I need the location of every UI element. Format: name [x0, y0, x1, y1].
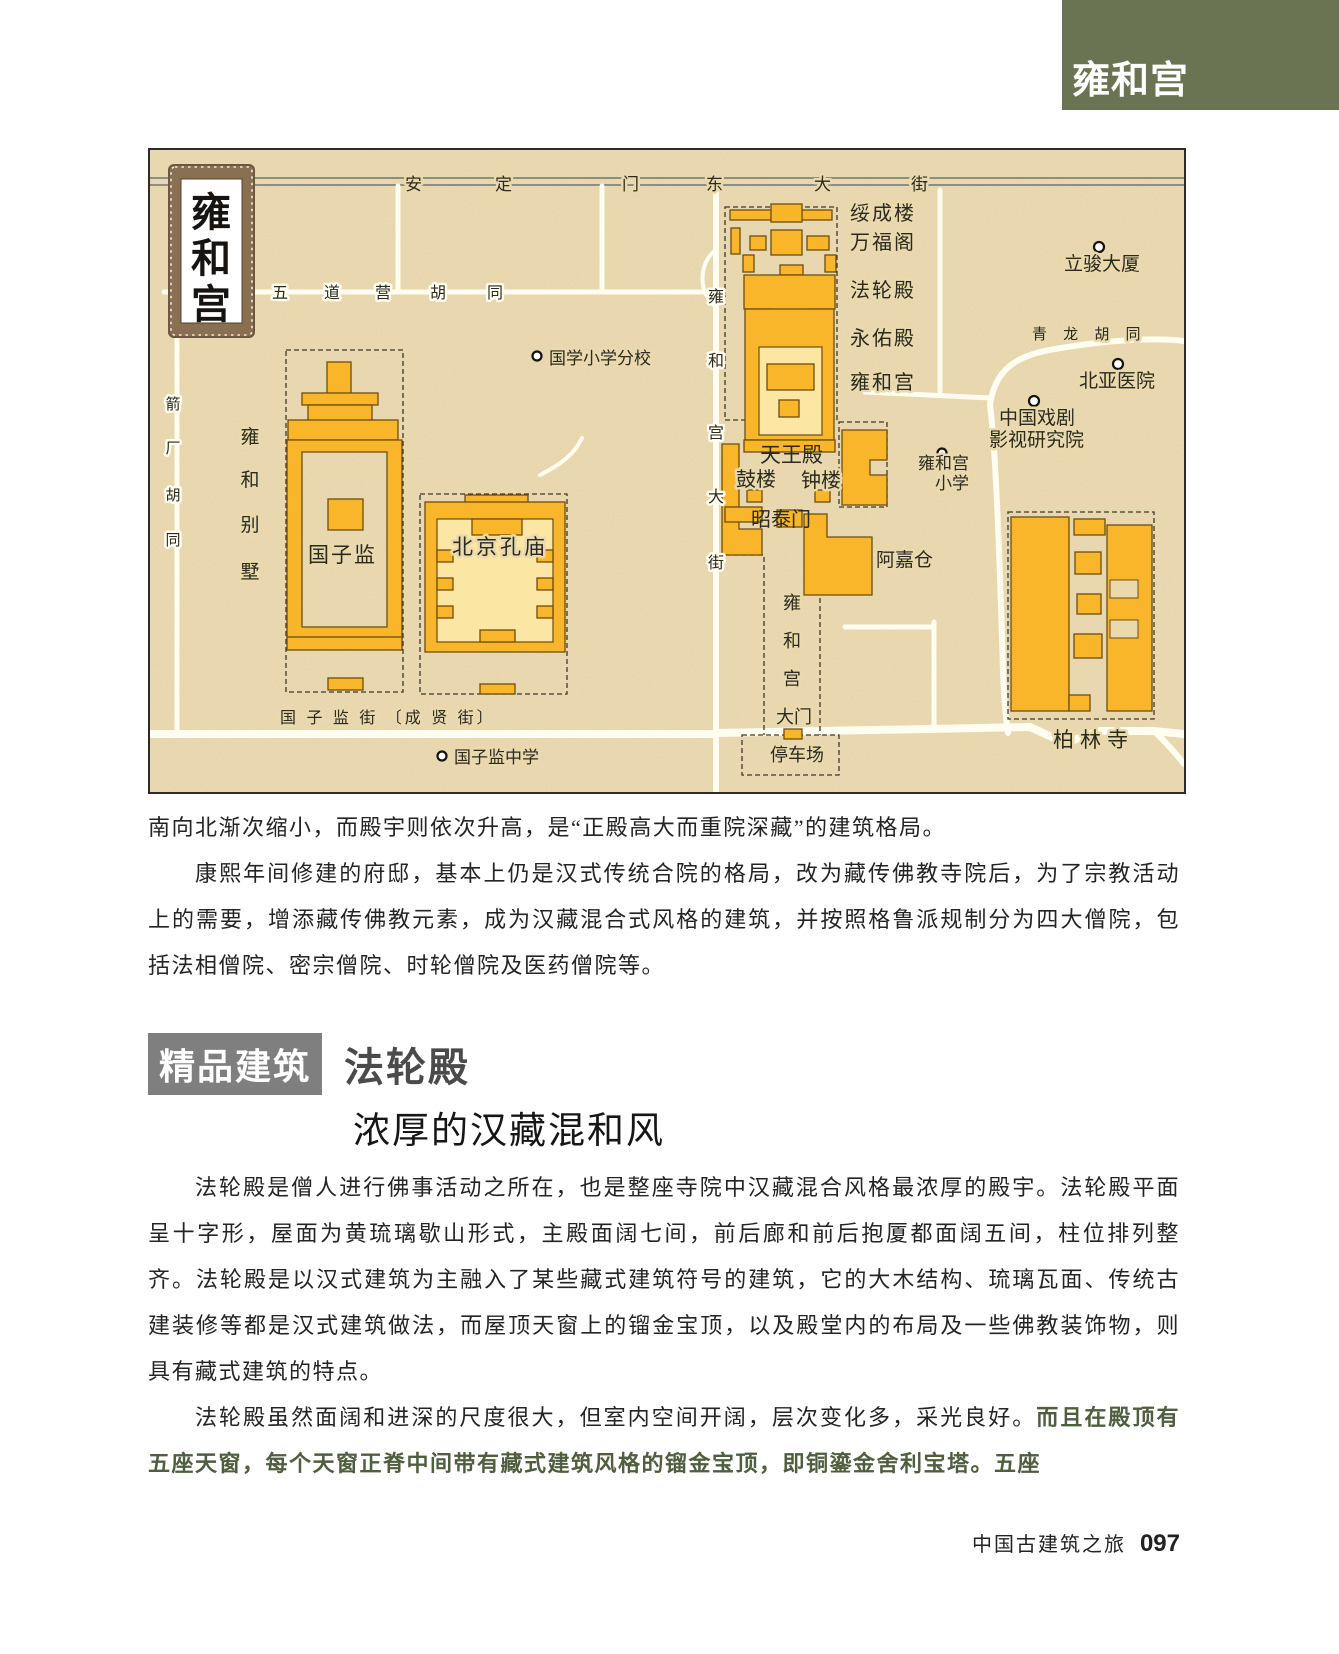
chapter-tab: 雍和宫: [1062, 0, 1339, 110]
street-guozijian-label: 国 子 监 街 〔成 贤 街〕: [280, 709, 496, 727]
intro-paragraphs: 南向北渐次缩小，而殿宇则依次升高，是“正殿高大而重院深藏”的建筑格局。 康熙年间…: [148, 805, 1180, 989]
poi-yonghegong-school-label-1: 雍和宫: [918, 454, 969, 473]
hall-gulou-label: 鼓楼: [736, 468, 776, 491]
street-jianchang-char: 胡: [165, 487, 180, 504]
paragraph-1: 南向北渐次缩小，而殿宇则依次升高，是“正殿高大而重院深藏”的建筑格局。: [148, 805, 1180, 851]
poi-dot: [1113, 359, 1123, 369]
street-wudaoying-char: 胡: [430, 284, 446, 302]
hall-zhonglou-label: 钟楼: [801, 469, 841, 492]
poi-dot: [438, 752, 447, 761]
gate-yonghegong-char: 雍: [783, 593, 801, 613]
street-andingmen-char: 定: [495, 175, 512, 194]
poi-drama-academy-label-2: 影视研究院: [989, 429, 1084, 451]
map-label-guozijian: 国子监: [308, 544, 377, 567]
gate-yonghegong-char: 和: [783, 631, 801, 651]
area-ajiacang-label: 阿嘉仓: [876, 549, 933, 571]
map-title-stamp: 雍 和 宫: [169, 165, 254, 337]
street-andingmen-char: 大: [814, 175, 831, 194]
chapter-tab-label: 雍和宫: [1072, 49, 1189, 104]
section-subtitle: 浓厚的汉藏混和风: [353, 1100, 665, 1154]
hall-zhaotaimen-label: 昭泰门: [751, 508, 811, 531]
stamp-char-2: 和: [191, 235, 231, 282]
stamp-char-1: 雍: [191, 189, 231, 236]
area-yonghe-villa-char: 雍: [240, 426, 259, 448]
poi-guozijian-school-label: 国子监中学: [454, 748, 539, 767]
hall-tianwangdian-label: 天王殿: [760, 444, 823, 467]
area-yonghe-villa-char: 别: [240, 514, 259, 536]
street-andingmen-char: 东: [706, 175, 723, 194]
street-yonghegong-dajie-char: 宫: [708, 424, 724, 442]
map-label-kongmiao: 北京孔庙: [452, 536, 548, 559]
street-wudaoying-char: 五: [272, 285, 288, 302]
paragraph-4-normal: 法轮殿虽然面阔和进深的尺度很大，但室内空间开阔，层次变化多，采光良好。: [195, 1405, 1036, 1430]
poi-dot: [1029, 396, 1039, 406]
gate-damen-label: 大门: [776, 707, 812, 727]
poi-guoxue-school-label: 国学小学分校: [549, 349, 651, 368]
street-wudaoying-char: 营: [375, 284, 391, 302]
area-yonghe-villa-char: 和: [240, 469, 259, 491]
paragraph-3: 法轮殿是僧人进行佛事活动之所在，也是整座寺院中汉藏混合风格最浓厚的殿宇。法轮殿平…: [148, 1165, 1180, 1395]
area-yonghe-villa-char: 墅: [240, 561, 259, 583]
poi-drama-academy-label-1: 中国戏剧: [999, 407, 1075, 429]
street-yonghegong-dajie-char: 和: [708, 352, 724, 370]
street-wudaoying-char: 同: [487, 285, 503, 302]
page-footer: 中国古建筑之旅097: [148, 1528, 1180, 1558]
street-yonghegong-dajie-char: 街: [708, 554, 724, 572]
poi-yonghegong-school-label-2: 小学: [935, 474, 969, 493]
street-qinglong-label: 青 龙 胡 同: [1032, 326, 1147, 343]
section-title: 法轮殿: [344, 1035, 470, 1093]
paragraph-2: 康熙年间修建的府邸，基本上仍是汉式传统合院的格局，改为藏传佛教寺院后，为了宗教活…: [148, 851, 1180, 989]
street-wudaoying-char: 道: [324, 284, 340, 302]
stamp-char-3: 宫: [191, 281, 231, 328]
hall-yongyoudian-label: 永佑殿: [850, 327, 916, 350]
street-jianchang-char: 厂: [165, 440, 180, 457]
section-heading: 精品建筑 法轮殿: [148, 1033, 470, 1095]
poi-dot: [1094, 242, 1104, 252]
page-number: 097: [1140, 1530, 1180, 1557]
street-andingmen-char: 街: [911, 175, 928, 194]
hall-falundian-label: 法轮殿: [850, 279, 916, 302]
street-yonghegong-dajie-char: 雍: [708, 288, 724, 306]
paragraph-4: 法轮殿虽然面阔和进深的尺度很大，但室内空间开阔，层次变化多，采光良好。而且在殿顶…: [148, 1395, 1180, 1487]
hall-suichenglou-label: 绥成楼: [850, 202, 916, 225]
street-andingmen-char: 门: [622, 175, 639, 194]
area-parking-label: 停车场: [770, 745, 824, 765]
section-tag-badge: 精品建筑: [148, 1033, 322, 1095]
gate-yonghegong-char: 宫: [783, 669, 801, 689]
street-jianchang-char: 同: [165, 532, 180, 549]
falundian-paragraphs: 法轮殿是僧人进行佛事活动之所在，也是整座寺院中汉藏混合风格最浓厚的殿宇。法轮殿平…: [148, 1165, 1180, 1487]
street-andingmen-char: 安: [405, 175, 422, 194]
book-title: 中国古建筑之旅: [972, 1534, 1126, 1556]
area-bailinsi-label: 柏林寺: [1053, 729, 1134, 752]
poi-lijun-tower-label: 立骏大厦: [1064, 253, 1140, 275]
hall-wanfuge-label: 万福阁: [850, 231, 916, 254]
hall-yonghegong-label: 雍和宫: [850, 371, 916, 394]
map-canvas: 国子监 北京孔庙: [150, 150, 1184, 792]
poi-dot: [533, 352, 542, 361]
yonghegong-area-map: 国子监 北京孔庙: [148, 148, 1186, 794]
street-yonghegong-dajie-char: 大: [708, 488, 724, 506]
poi-beiya-hospital-label: 北亚医院: [1079, 370, 1155, 392]
street-jianchang-char: 箭: [165, 395, 180, 413]
